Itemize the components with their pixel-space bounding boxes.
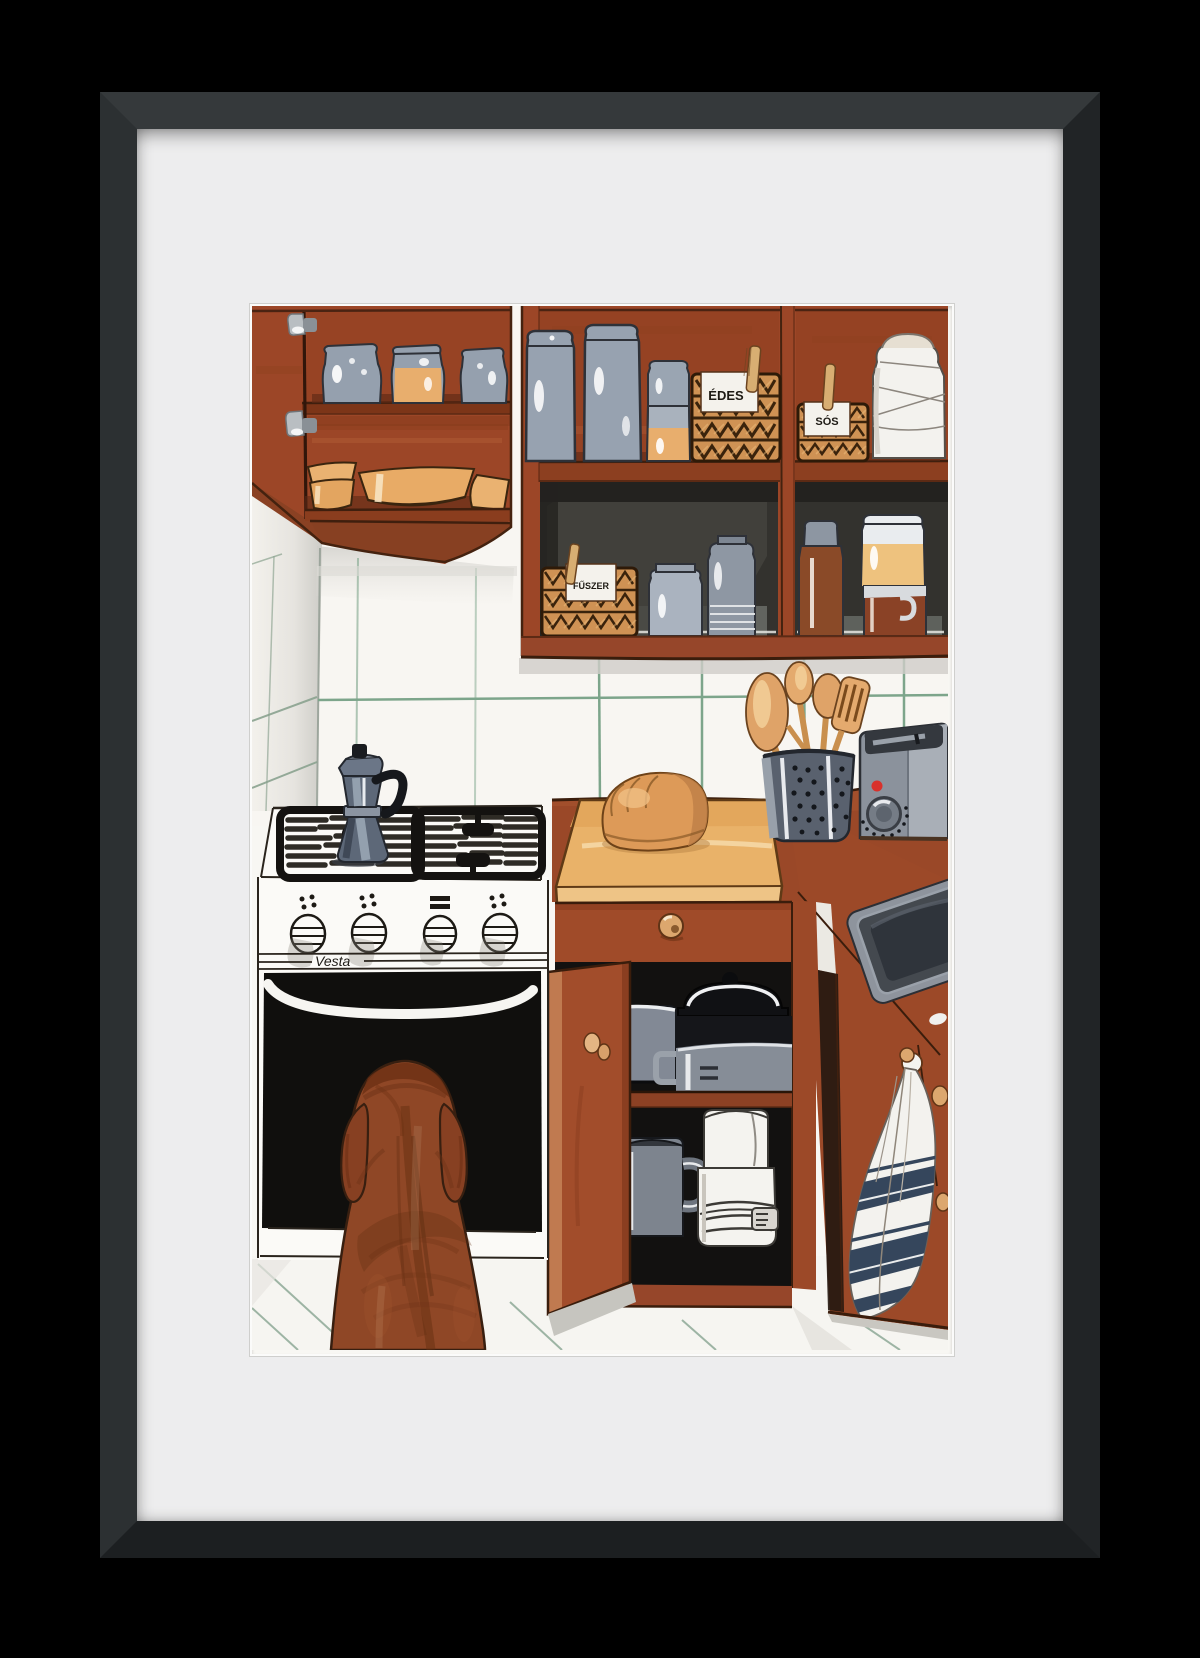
svg-text:FŰSZER: FŰSZER (573, 580, 610, 591)
svg-text:Vesta: Vesta (315, 953, 350, 969)
svg-text:ÉDES: ÉDES (708, 388, 744, 403)
svg-text:SÓS: SÓS (815, 415, 838, 428)
